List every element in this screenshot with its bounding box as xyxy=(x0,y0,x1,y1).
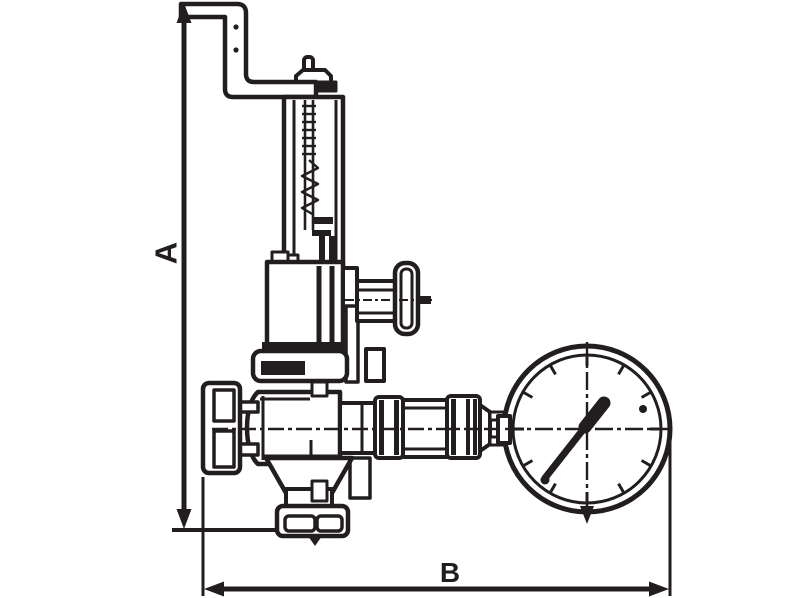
gauge-union xyxy=(340,396,504,458)
lever-pin-dot xyxy=(233,24,238,29)
outlet-center-tab xyxy=(308,536,322,546)
union-nut-rib xyxy=(451,399,456,455)
union-nut-rib xyxy=(466,399,470,455)
gauge-bottom-tab xyxy=(580,506,594,524)
outlet xyxy=(266,458,352,546)
lever-arm xyxy=(181,4,316,97)
technical-drawing: A B xyxy=(0,0,800,598)
lift-lever xyxy=(181,4,316,97)
valve-dimension-drawing: A B xyxy=(0,0,800,598)
pressure-gauge xyxy=(498,342,670,524)
lever-pin-dot xyxy=(233,47,238,52)
band-recess xyxy=(261,361,305,375)
union-nut-rib xyxy=(379,400,384,455)
spring-seat xyxy=(312,230,331,236)
body-neck-stub xyxy=(312,382,327,396)
side-valve xyxy=(343,263,434,382)
side-handle xyxy=(395,263,418,334)
body-band xyxy=(253,349,384,381)
body-lower-right-boss xyxy=(350,458,370,498)
dim-b-arrow-left xyxy=(204,582,224,597)
gauge-dial-dot xyxy=(639,405,647,413)
dim-b-label: B xyxy=(440,557,460,588)
spring-seat xyxy=(312,217,333,224)
union-nut-rib xyxy=(473,399,477,455)
stem-fork xyxy=(329,236,335,262)
outlet-neck-window xyxy=(312,481,327,501)
union-nut-rib xyxy=(394,400,399,455)
dim-a-arrow-down xyxy=(177,509,192,529)
bonnet xyxy=(262,252,347,350)
spring-housing xyxy=(284,97,343,265)
dim-b-arrow-right xyxy=(649,582,669,597)
gauge-needle-tip-dot xyxy=(541,476,550,485)
band-boss xyxy=(366,349,384,381)
spindle-threads xyxy=(302,106,316,154)
dim-a-label: A xyxy=(149,242,184,264)
stem-fork xyxy=(319,236,325,262)
